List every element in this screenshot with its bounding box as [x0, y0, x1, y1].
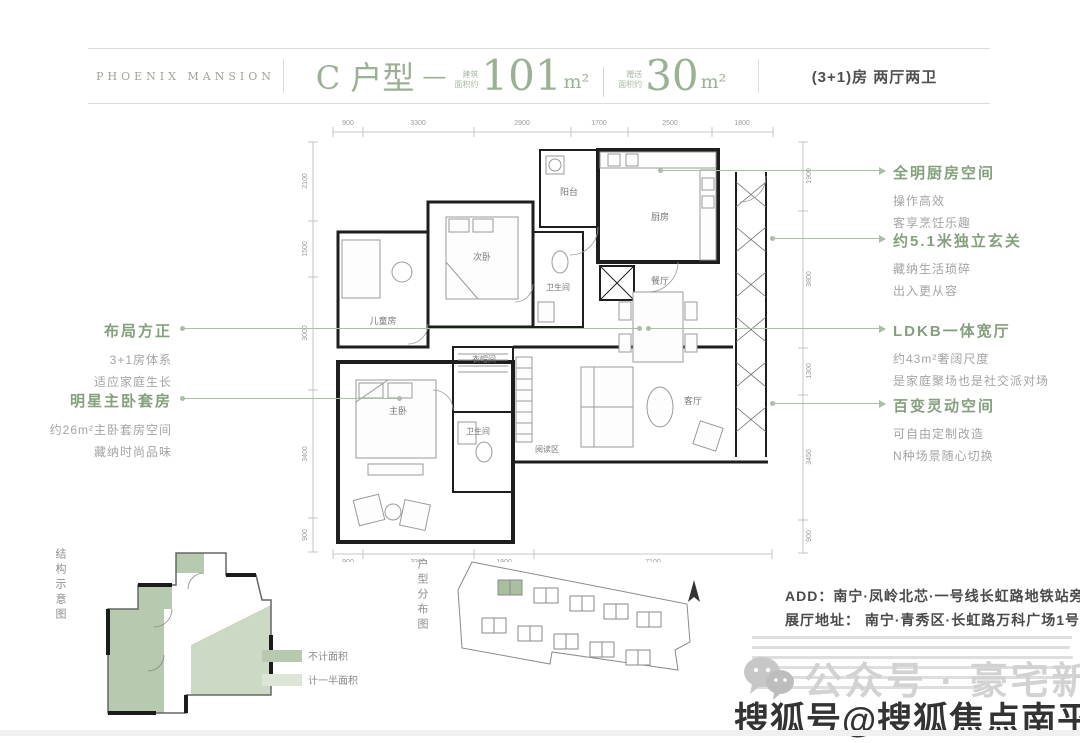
- callout-flex-space: 百变灵动空间 可自由定制改造 N种场景随心切换: [893, 395, 1073, 467]
- leader-flex-space: [772, 403, 885, 404]
- leader-kitchen: [660, 170, 885, 171]
- svg-text:900: 900: [342, 120, 354, 127]
- floor-plan: 900 3300 2900 1700 2500 1800 2100 1500 3…: [298, 112, 878, 562]
- built-area-label: 建筑面积约: [454, 70, 478, 90]
- legend-swatch-half: [262, 674, 302, 686]
- siteplan-drawing: [432, 552, 722, 727]
- legend-item-excluded: 不计面积: [262, 648, 358, 663]
- svg-text:1700: 1700: [591, 120, 607, 127]
- leader-foyer: [772, 238, 885, 239]
- built-area-group: 建筑面积约 101 m²: [454, 55, 589, 97]
- page-bottom-strip: [0, 730, 1080, 736]
- showroom-address: 展厅地址： 南宁·青秀区·长虹路万科广场1号门: [785, 608, 1080, 632]
- header-band: PHOENIX MANSION C 户型 — 建筑面积约 101 m² 赠送面积…: [88, 48, 990, 104]
- svg-text:900: 900: [806, 530, 813, 542]
- built-area-value: 101: [481, 55, 561, 97]
- unit-title: C 户型: [316, 53, 415, 99]
- svg-text:900: 900: [342, 559, 354, 562]
- callout-master-suite-title: 明星主卧套房: [20, 390, 172, 411]
- callout-ldkb-title: LDKB一体宽厅: [893, 320, 1073, 341]
- structure-diagram-label: 结构示意图: [52, 548, 68, 623]
- legend-item-half: 计一半面积: [262, 672, 358, 687]
- structure-diagram: [76, 545, 306, 735]
- room-label-bath2: 卫生间: [466, 426, 490, 436]
- callout-foyer: 约5.1米独立玄关 藏纳生活琐碎 出入更从容: [893, 230, 1073, 302]
- unit-spec: (3+1)房 两厅两卫: [812, 66, 938, 87]
- gift-area-label: 赠送面积约: [618, 70, 642, 90]
- room-label-second-bedroom: 次卧: [473, 251, 491, 262]
- room-label-master: 主卧: [389, 405, 407, 416]
- floor-plan-drawing: 900 3300 2900 1700 2500 1800 2100 1500 3…: [298, 112, 878, 562]
- north-arrow-icon: [688, 580, 700, 602]
- legend-swatch-excluded: [262, 650, 302, 662]
- room-label-children: 儿童房: [369, 315, 396, 326]
- svg-text:3450: 3450: [806, 449, 813, 465]
- room-label-kitchen: 厨房: [651, 211, 669, 222]
- room-label-balcony: 阳台: [560, 186, 578, 197]
- svg-text:900: 900: [302, 529, 309, 541]
- callout-foyer-title: 约5.1米独立玄关: [893, 230, 1073, 251]
- callout-master-suite: 明星主卧套房 约26m²主卧套房空间 藏纳时尚品味: [20, 390, 172, 463]
- leader-ldkb: [648, 328, 885, 329]
- svg-text:2500: 2500: [662, 120, 678, 127]
- gift-area-unit: m²: [701, 71, 727, 93]
- spec-section: (3+1)房 两厅两卫: [759, 49, 990, 103]
- gift-area-group: 赠送面积约 30 m²: [618, 55, 726, 97]
- address-block: ADD：南宁·凤岭北芯·一号线长虹路地铁站旁 展厅地址： 南宁·青秀区·长虹路万…: [785, 584, 1080, 632]
- callout-layout-title: 布局方正: [20, 320, 172, 341]
- floorplan-poster: { "header": { "brand": "PHOENIX MANSION"…: [0, 0, 1080, 736]
- svg-text:2900: 2900: [514, 120, 530, 127]
- svg-text:3400: 3400: [302, 446, 309, 462]
- room-label-cloakroom: 衣帽间: [472, 354, 496, 364]
- siteplan-buildings: [482, 580, 661, 665]
- room-label-dining: 餐厅: [651, 275, 669, 286]
- callout-kitchen-title: 全明厨房空间: [893, 162, 1073, 183]
- entry-corridor-hatch: [736, 182, 766, 432]
- room-label-living: 客厅: [684, 395, 702, 406]
- callout-flex-space-title: 百变灵动空间: [893, 395, 1073, 416]
- siteplan-label: 户型分布图: [414, 558, 430, 633]
- brand-section: PHOENIX MANSION: [88, 49, 283, 103]
- leader-layout: [182, 328, 640, 329]
- gift-area-value: 30: [645, 55, 698, 97]
- project-address: ADD：南宁·凤岭北芯·一号线长虹路地铁站旁: [785, 584, 1080, 608]
- svg-text:3800: 3800: [806, 271, 813, 287]
- svg-text:1300: 1300: [806, 363, 813, 379]
- unit-title-section: C 户型 — 建筑面积约 101 m² 赠送面积约 30 m²: [284, 49, 758, 103]
- brand-logo-text: PHOENIX MANSION: [96, 70, 275, 83]
- room-label-reading: 阅读区: [535, 444, 559, 454]
- svg-text:2100: 2100: [302, 173, 309, 189]
- room-label-bath1: 卫生间: [546, 282, 570, 292]
- svg-text:1800: 1800: [734, 120, 750, 127]
- svg-text:1500: 1500: [302, 241, 309, 257]
- callout-layout: 布局方正 3+1房体系 适应家庭生长: [20, 320, 172, 393]
- structure-legend: 不计面积 计一半面积: [262, 648, 358, 696]
- area-separator: [603, 67, 604, 97]
- callout-ldkb: LDKB一体宽厅 约43m²奢阔尺度 是家庭聚场也是社交派对场: [893, 320, 1073, 392]
- dimension-lines: [308, 127, 808, 559]
- leader-master-suite: [182, 398, 400, 399]
- structure-diagram-drawing: [76, 545, 306, 730]
- callout-kitchen: 全明厨房空间 操作高效 客享烹饪乐趣: [893, 162, 1073, 234]
- built-area-unit: m²: [564, 71, 590, 93]
- svg-text:3300: 3300: [410, 120, 426, 127]
- unit-title-dash: —: [422, 62, 446, 90]
- siteplan: [432, 552, 722, 732]
